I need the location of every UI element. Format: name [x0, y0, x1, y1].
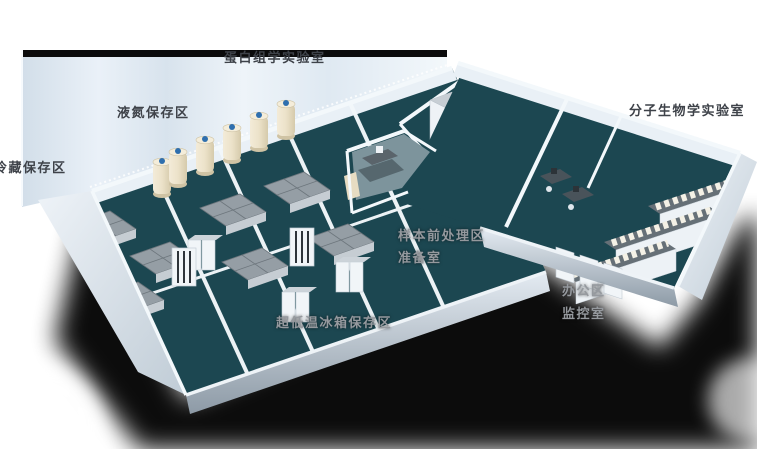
dewar-tank — [169, 148, 187, 188]
dewar-tank — [196, 136, 214, 176]
area-label-molecular-biology: 分子生物学实验室 — [629, 104, 745, 119]
area-label-proteomics-lab: 蛋白组学实验室 — [224, 51, 326, 66]
dewar-tank — [223, 124, 241, 164]
building-rendering — [0, 0, 757, 449]
dewar-tank — [277, 100, 295, 140]
floorplan-stage: 蛋白组学实验室 液氮保存区 冷藏保存区 分子生物学实验室 样本前处理区 准备室 … — [0, 0, 757, 449]
equipment-rack — [172, 248, 196, 286]
prep-instrument — [376, 146, 383, 153]
area-label-monitoring-room: 监控室 — [562, 307, 606, 322]
area-label-office: 办公区 — [562, 284, 606, 299]
equipment-rack — [290, 228, 314, 266]
area-label-cold-storage: 冷藏保存区 — [0, 161, 67, 176]
area-label-sample-pretreatment: 样本前处理区 — [398, 229, 485, 244]
area-label-liquid-nitrogen: 液氮保存区 — [117, 106, 190, 121]
area-label-ult-freezer: 超低温冰箱保存区 — [276, 316, 392, 331]
dewar-tank — [250, 112, 268, 152]
area-label-preparation-room: 准备室 — [398, 251, 442, 266]
dewar-tank — [153, 158, 171, 198]
